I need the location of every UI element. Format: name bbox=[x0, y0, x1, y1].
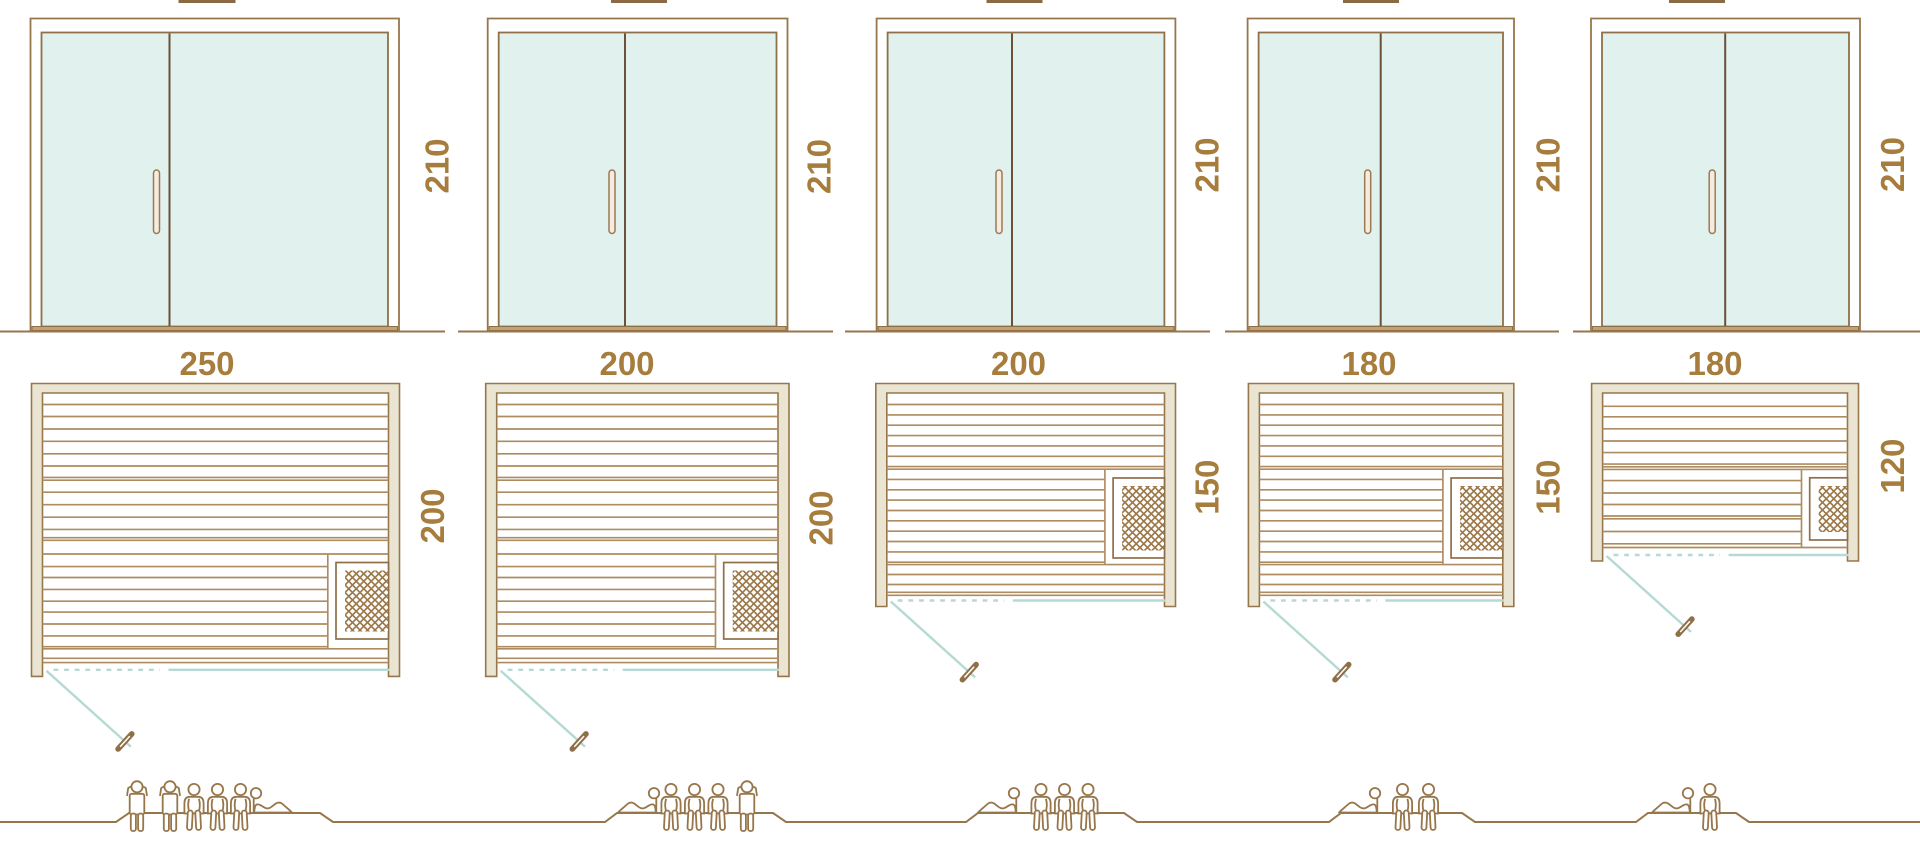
svg-text:150: 150 bbox=[1189, 460, 1226, 515]
svg-text:200: 200 bbox=[414, 488, 451, 543]
svg-text:250: 250 bbox=[179, 345, 234, 382]
svg-text:210: 210 bbox=[419, 138, 456, 193]
svg-text:210: 210 bbox=[1188, 137, 1225, 192]
svg-text:180: 180 bbox=[1341, 345, 1396, 382]
svg-text:210: 210 bbox=[1874, 137, 1911, 192]
svg-text:210: 210 bbox=[801, 139, 838, 194]
svg-text:150: 150 bbox=[1530, 460, 1567, 515]
svg-text:200: 200 bbox=[599, 345, 654, 382]
svg-text:180: 180 bbox=[1687, 345, 1742, 382]
svg-text:200: 200 bbox=[991, 345, 1046, 382]
svg-text:200: 200 bbox=[802, 490, 839, 545]
svg-text:210: 210 bbox=[1529, 137, 1566, 192]
svg-text:120: 120 bbox=[1874, 439, 1911, 494]
